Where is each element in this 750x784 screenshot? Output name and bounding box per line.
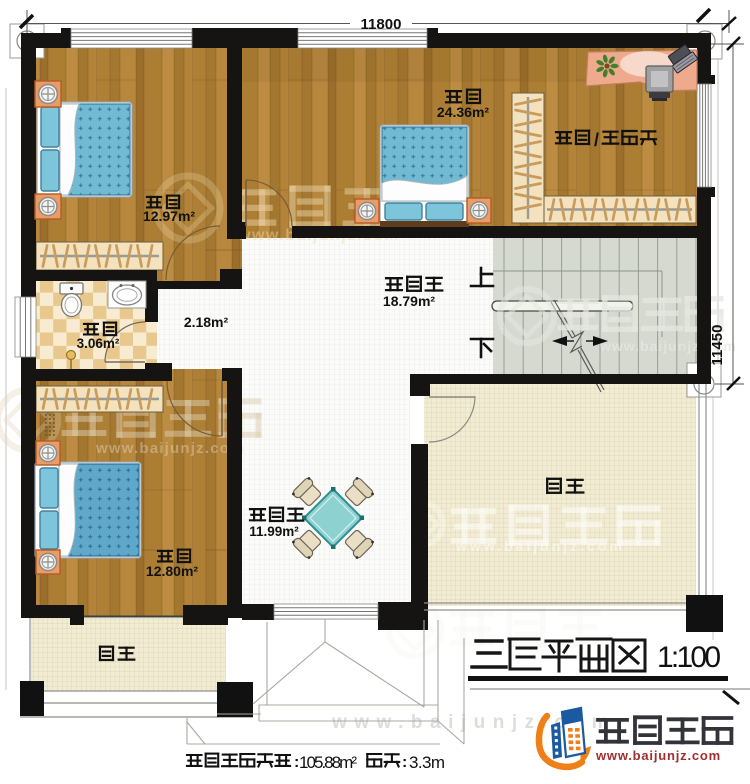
svg-text::: : (402, 754, 407, 771)
svg-text:www.baijunjz.com: www.baijunjz.com (455, 538, 625, 554)
svg-text:12.80m²: 12.80m² (146, 563, 198, 579)
svg-text:www.baijunjz.com: www.baijunjz.com (95, 440, 245, 457)
svg-text:105.88m²: 105.88m² (299, 753, 357, 772)
svg-text:12.97m²: 12.97m² (143, 208, 195, 224)
svg-text:1:100: 1:100 (657, 641, 721, 674)
svg-text:2.18m²: 2.18m² (184, 314, 229, 330)
svg-text:3.06m²: 3.06m² (77, 336, 120, 351)
svg-text:11.99m²: 11.99m² (249, 524, 299, 539)
svg-text:18.79m²: 18.79m² (383, 293, 435, 309)
svg-text:24.36m²: 24.36m² (437, 104, 489, 120)
svg-text:www.baijunjz.com: www.baijunjz.com (595, 748, 721, 763)
svg-text:11800: 11800 (361, 16, 402, 33)
svg-text:/: / (594, 130, 599, 150)
svg-text:3.3m: 3.3m (409, 753, 445, 772)
svg-text:11450: 11450 (709, 325, 726, 366)
